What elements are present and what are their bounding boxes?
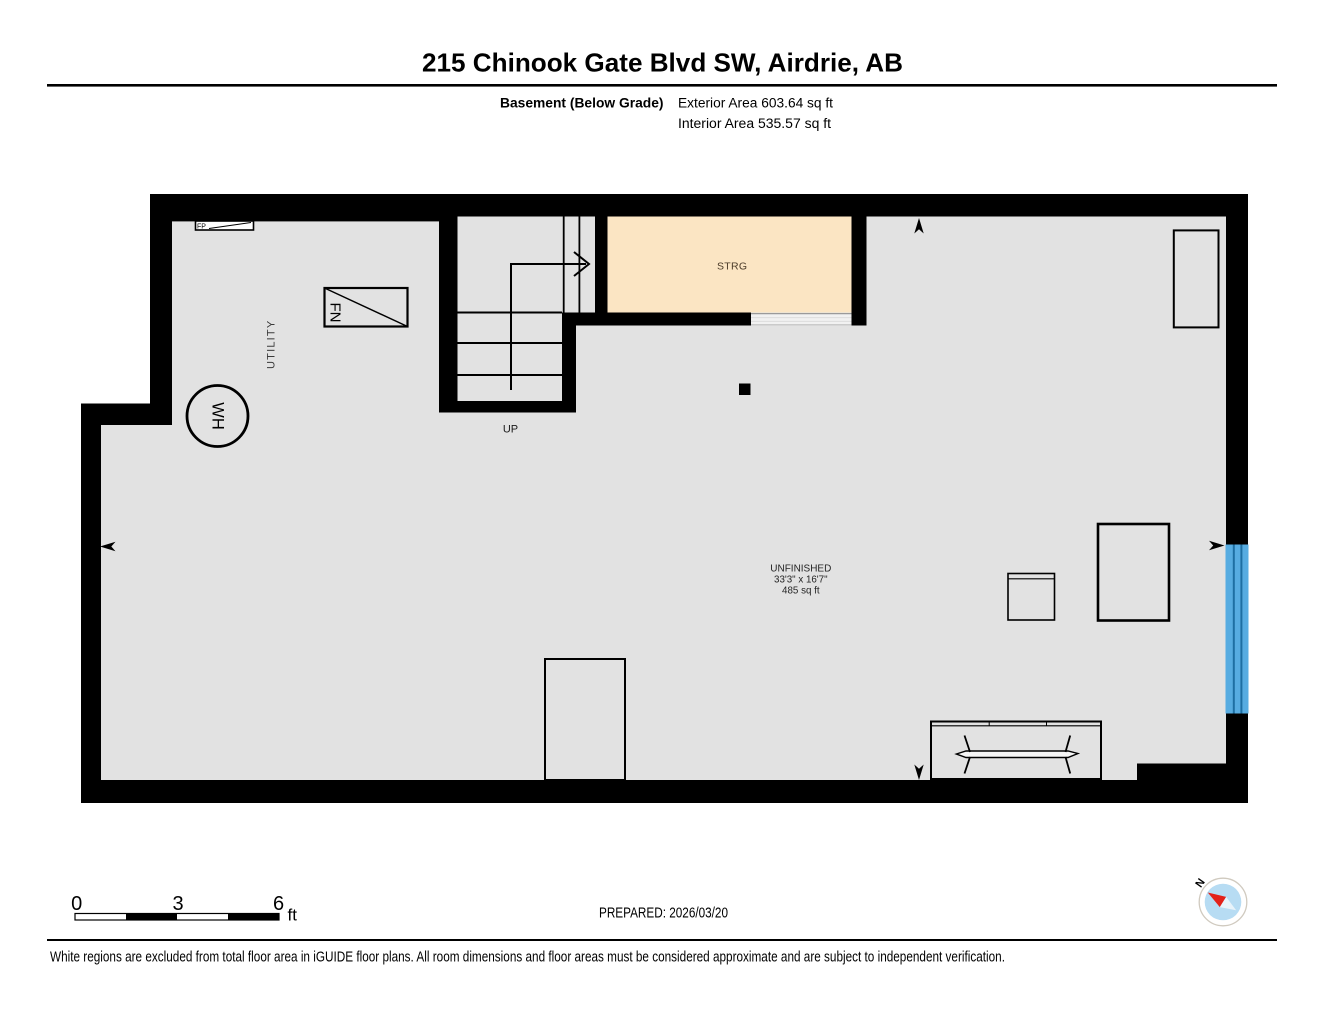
svg-text:Basement (Below Grade): Basement (Below Grade) — [500, 95, 664, 111]
svg-text:0: 0 — [71, 893, 82, 915]
svg-text:STRG: STRG — [717, 261, 747, 273]
svg-text:FP: FP — [197, 224, 206, 231]
svg-text:PREPARED: 2026/03/20: PREPARED: 2026/03/20 — [599, 905, 728, 922]
svg-text:UNFINISHED: UNFINISHED — [770, 564, 831, 575]
svg-text:3: 3 — [172, 893, 183, 915]
svg-text:White regions are excluded fro: White regions are excluded from total fl… — [50, 950, 1005, 966]
svg-text:Exterior Area 603.64 sq ft: Exterior Area 603.64 sq ft — [678, 96, 833, 112]
svg-text:WH: WH — [209, 402, 227, 430]
svg-text:485 sq ft: 485 sq ft — [782, 585, 820, 596]
svg-text:33'3" x 16'7": 33'3" x 16'7" — [774, 575, 828, 586]
svg-text:6: 6 — [273, 893, 284, 915]
svg-text:FN: FN — [326, 303, 343, 323]
svg-text:Interior Area 535.57 sq ft: Interior Area 535.57 sq ft — [678, 116, 831, 132]
svg-text:ft: ft — [288, 906, 298, 925]
svg-text:215 Chinook Gate Blvd SW, Aird: 215 Chinook Gate Blvd SW, Airdrie, AB — [422, 48, 903, 78]
svg-text:UTILITY: UTILITY — [266, 320, 278, 369]
svg-text:UP: UP — [503, 424, 518, 436]
